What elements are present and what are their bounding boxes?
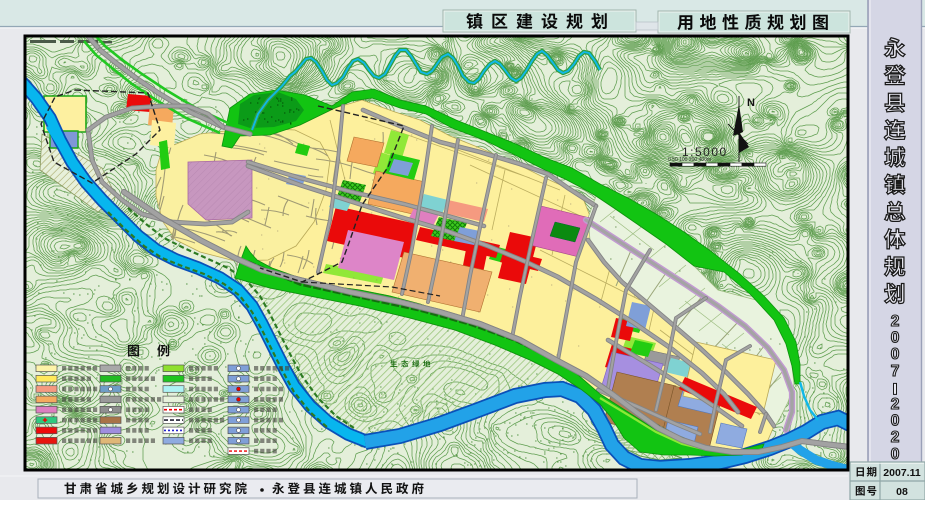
svg-text:0: 0 <box>891 346 900 363</box>
svg-text:N: N <box>747 97 755 109</box>
svg-text:2: 2 <box>891 313 900 330</box>
svg-text:08: 08 <box>896 486 908 498</box>
svg-text:2: 2 <box>891 429 900 446</box>
svg-text:0: 0 <box>891 446 900 463</box>
svg-text:2007.11: 2007.11 <box>883 467 921 479</box>
svg-text:0 50 100 200 400m: 0 50 100 200 400m <box>668 157 711 163</box>
svg-text:0: 0 <box>891 413 900 430</box>
svg-text:7: 7 <box>891 363 900 380</box>
svg-text:0: 0 <box>891 330 900 347</box>
svg-text:2: 2 <box>891 396 900 413</box>
